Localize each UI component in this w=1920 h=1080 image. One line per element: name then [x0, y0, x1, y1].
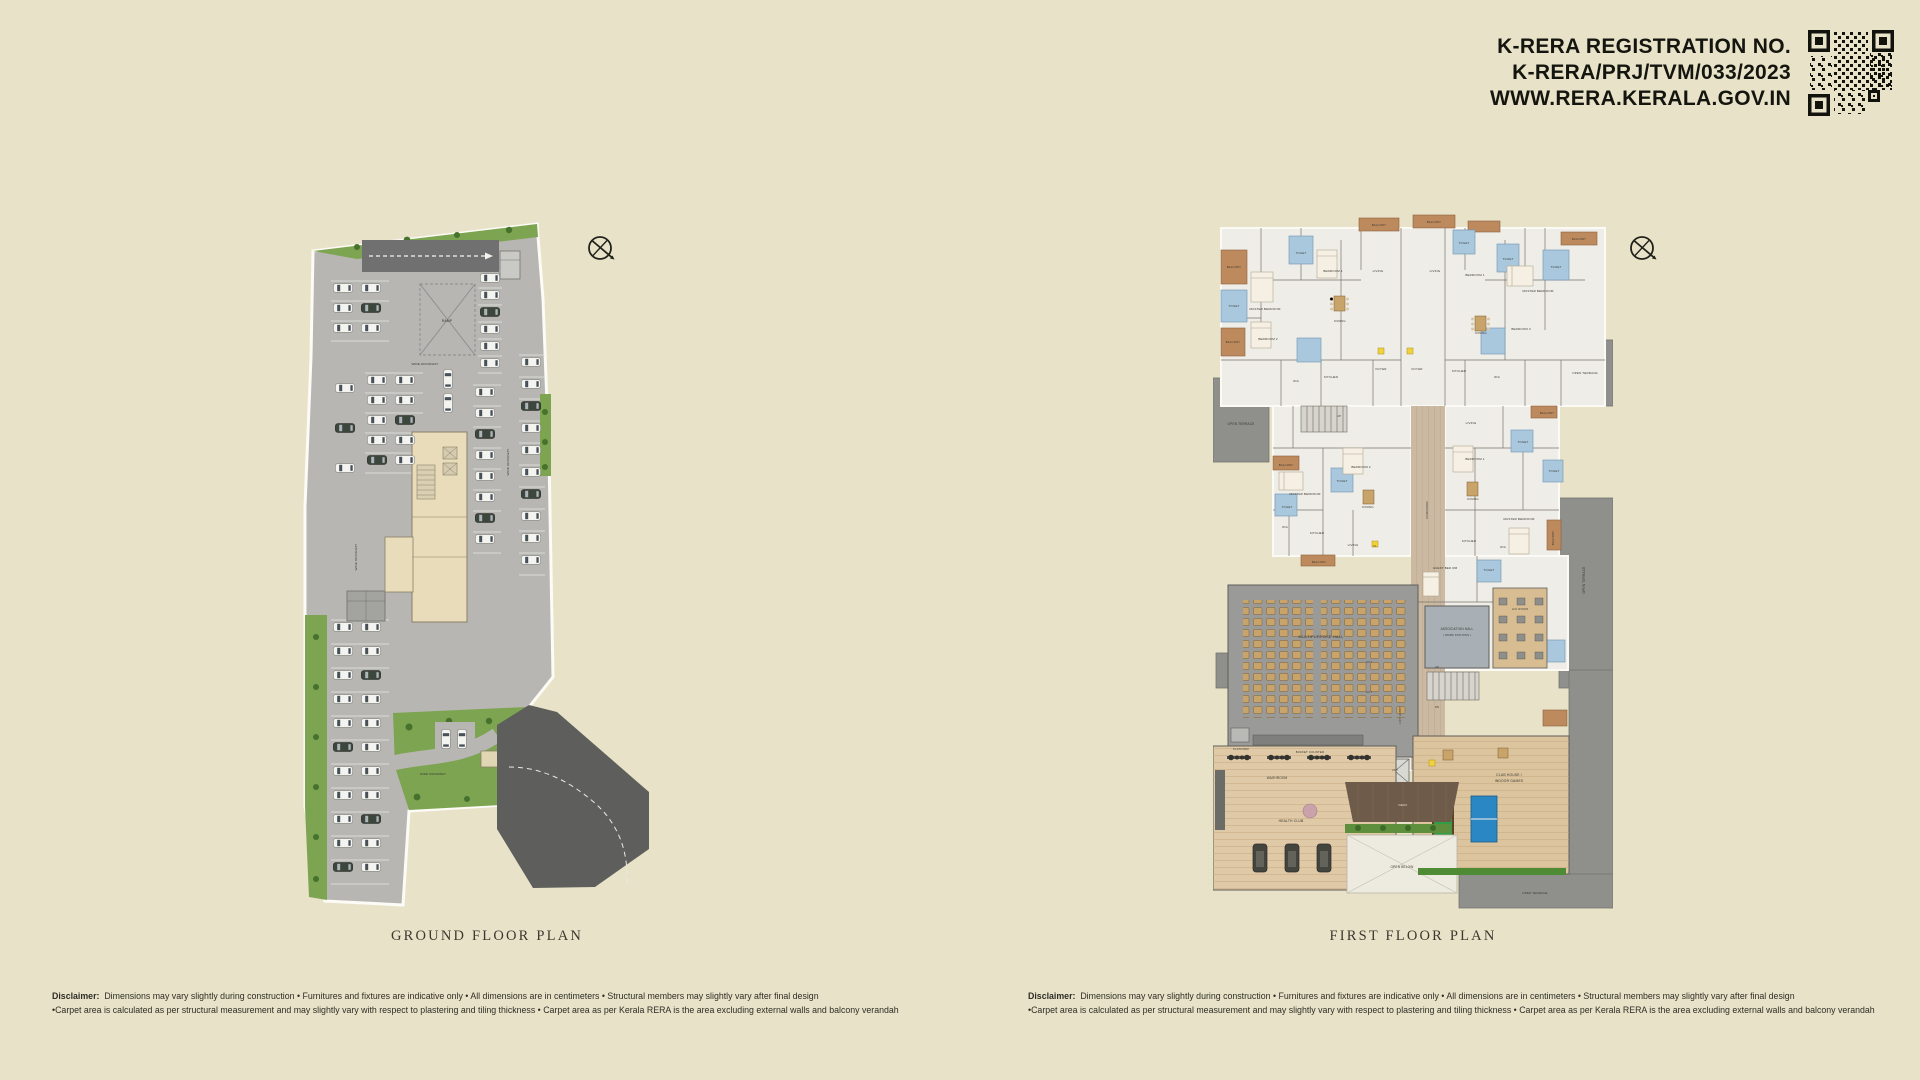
plan-label: PLATFORM: [1233, 747, 1249, 751]
plan-label: BALCONY: [1279, 463, 1293, 467]
plan-label: TOILET: [1518, 440, 1529, 444]
disclaimer-label: Disclaimer:: [52, 991, 99, 1001]
plan-label: BALCONY: [1227, 265, 1241, 269]
rera-line-2: K-RERA/PRJ/TVM/033/2023: [1490, 60, 1791, 86]
qr-code: [1806, 28, 1896, 118]
plan-label: TOILET: [1549, 469, 1560, 473]
plan-label: W/A: [1494, 375, 1500, 379]
plan-label: MULTIPURPOSE HALL: [1299, 634, 1345, 639]
plan-label: KITCHEN: [1310, 531, 1324, 535]
plan-label: MASTER BEDROOM: [1523, 289, 1554, 293]
plan-label: W/A: [1293, 379, 1299, 383]
plan-label: TOILET: [1551, 265, 1562, 269]
plan-label: W/A: [1500, 545, 1506, 549]
access-road: [497, 705, 649, 888]
plan-label: BALCONY: [1540, 411, 1554, 415]
plan-label: UP: [1337, 414, 1341, 418]
plan-label: ASSOCIATION HALL: [1441, 627, 1474, 631]
plan-label: CORRIDOR: [1425, 501, 1429, 519]
plan-label: TOILET: [1282, 505, 1293, 509]
plan-label: LIVING: [1373, 269, 1384, 273]
visitor-parking-pad: [435, 722, 475, 754]
platform: [1231, 728, 1249, 742]
plan-label: WIDE DRIVEWAY: [354, 543, 358, 570]
plan-label: BEDROOM 1: [1465, 273, 1485, 277]
buffet-counter: [1253, 735, 1363, 745]
disclaimer-left: Disclaimer: Dimensions may vary slightly…: [52, 990, 952, 1017]
plan-label: OPEN BELOW: [1391, 865, 1414, 869]
plan-label: BALCONY: [1551, 531, 1555, 545]
plan-label: LIFT: [1366, 690, 1372, 694]
plan-label: ( WORK STATIONS ): [1443, 633, 1471, 637]
ground-floor-plan-drawing: RAMPWIDE DRIVEWAYWIDE DRIVEWAYWIDE DRIVE…: [297, 207, 677, 907]
plan-label: BALCONY: [1572, 237, 1586, 241]
plan-label: LIFT LOBBY: [1398, 706, 1402, 723]
plan-label: LIVING: [1348, 543, 1359, 547]
plan-label: HEALTH CLUB: [1279, 819, 1304, 823]
plan-label: TOILET: [1296, 251, 1307, 255]
plan-label: BALCONY: [1312, 560, 1326, 564]
plan-label: BEDROOM 3: [1511, 327, 1531, 331]
plan-label: UP: [1435, 665, 1439, 669]
plan-label: DINING: [1467, 497, 1479, 501]
plan-label: OPEN TERRACE: [1582, 567, 1586, 594]
plan-label: DN: [1435, 705, 1439, 709]
plan-label: LIVING: [1430, 269, 1441, 273]
disclaimer-right: Disclaimer: Dimensions may vary slightly…: [1028, 990, 1920, 1017]
plan-label: BEDROOM 1: [1465, 457, 1485, 461]
entry-ramp: [362, 240, 499, 272]
planter-strip: [1345, 824, 1451, 833]
plan-label: A/C ROOM: [1512, 607, 1529, 611]
weight-stack: [1215, 770, 1225, 830]
association-hall: [1425, 606, 1489, 668]
plan-label: BALCONY: [1427, 220, 1441, 224]
plan-label: TOILET: [1503, 257, 1514, 261]
dg-room: [347, 591, 385, 621]
hedge: [1418, 868, 1566, 875]
exercise-mat: [1303, 804, 1317, 818]
plan-label: RAMP: [442, 319, 453, 323]
plan-label: WIDE DRIVEWAY: [411, 362, 438, 366]
plan-label: DINING: [1475, 331, 1487, 335]
rera-line-1: K-RERA REGISTRATION NO.: [1490, 34, 1791, 60]
plan-label: WIDE DRIVEWAY: [420, 772, 446, 776]
first-floor-plan-title: FIRST FLOOR PLAN: [1213, 928, 1613, 945]
plan-label: KITCHEN: [1462, 539, 1476, 543]
plan-label: INDOOR GAMES: [1495, 779, 1524, 783]
open-below-void: [1347, 835, 1457, 893]
plan-label: OPEN TERRACE: [1228, 422, 1255, 426]
plan-label: BUFFET COUNTER: [1296, 750, 1324, 754]
first-floor-plan-drawing: BALCONYTOILETBALCONYMASTER BEDROOMBEDROO…: [1213, 210, 1613, 910]
plan-label: KITCHEN: [1324, 375, 1338, 379]
plan-label: BEDROOM 2: [1258, 337, 1278, 341]
plan-label: BALCONY: [1226, 340, 1240, 344]
rera-registration-block: K-RERA REGISTRATION NO. K-RERA/PRJ/TVM/0…: [1490, 34, 1791, 112]
plan-label: FOYER: [1411, 367, 1423, 371]
plan-label: BALCONY: [1372, 223, 1386, 227]
north-arrow-icon: [1628, 235, 1662, 267]
plan-label: K1: [1373, 544, 1377, 548]
plan-label: DINING: [1334, 319, 1346, 323]
plan-label: TOILET: [1459, 241, 1470, 245]
plan-label: WASHROOM: [1267, 776, 1288, 780]
disclaimer-label: Disclaimer:: [1028, 991, 1075, 1001]
brochure-page: K-RERA REGISTRATION NO. K-RERA/PRJ/TVM/0…: [0, 0, 1920, 1080]
disclaimer-line-2: •Carpet area is calculated as per struct…: [1028, 1005, 1875, 1015]
plan-label: BEDROOM 1: [1323, 269, 1343, 273]
plan-label: TOILET: [1229, 304, 1240, 308]
plan-label: OPEN TERRACE: [1572, 371, 1597, 375]
plan-label: DINING: [1362, 505, 1374, 509]
plan-label: GUEST BED RM: [1433, 566, 1458, 570]
plan-label: LIFT: [1366, 660, 1372, 664]
plan-label: MASTER BEDROOM: [1250, 307, 1281, 311]
disclaimer-line-2: •Carpet area is calculated as per struct…: [52, 1005, 899, 1015]
plan-label: TOILET: [1484, 568, 1495, 572]
plan-label: OPEN TERRACE: [1522, 891, 1547, 895]
plan-label: LIVING: [1466, 421, 1477, 425]
ground-floor-plan-title: GROUND FLOOR PLAN: [297, 928, 677, 945]
plan-label: MASTER BEDROOM: [1504, 517, 1535, 521]
disclaimer-line-1: Dimensions may vary slightly during cons…: [1080, 991, 1794, 1001]
rera-line-3: WWW.RERA.KERALA.GOV.IN: [1490, 86, 1791, 112]
plan-label: KITCHEN: [1452, 369, 1466, 373]
core-stair: [417, 465, 435, 499]
substation-room: [500, 251, 520, 279]
plan-label: BEDROOM 2: [1351, 465, 1371, 469]
plan-label: LIFT: [1392, 768, 1398, 772]
plan-label: MASTER BEDROOM: [1290, 492, 1321, 496]
plan-label: CLUB HOUSE /: [1496, 773, 1522, 777]
table-tennis-table: [1471, 796, 1497, 842]
plan-label: TOILET: [1337, 479, 1348, 483]
disclaimer-line-1: Dimensions may vary slightly during cons…: [104, 991, 818, 1001]
multipurpose-hall: [1228, 585, 1418, 757]
deck: [1345, 782, 1459, 822]
plan-label: WIDE DRIVEWAY: [506, 448, 510, 475]
plan-label: FOYER: [1375, 367, 1387, 371]
plan-label: W/A: [1282, 525, 1288, 529]
plan-label: DECK: [1399, 803, 1408, 807]
ac-workstation-room: [1493, 588, 1547, 668]
